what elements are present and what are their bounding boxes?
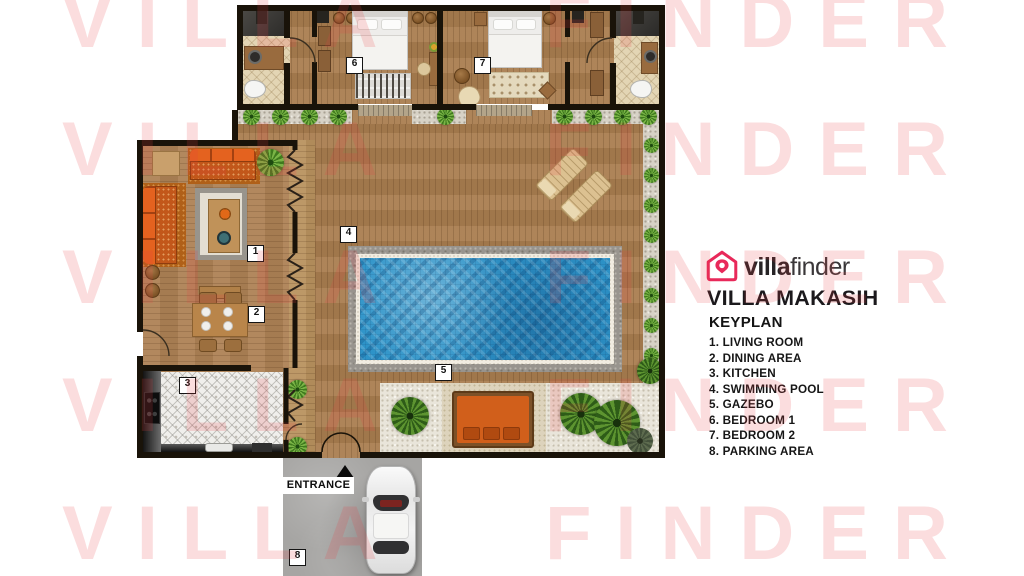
dining-chair xyxy=(199,339,217,352)
wall xyxy=(412,104,476,110)
wall xyxy=(137,365,251,371)
brand-name-villa: villa xyxy=(744,253,790,281)
bedroom1-chair xyxy=(417,62,431,76)
bedroom2-nightstand xyxy=(474,12,487,26)
bedroom1-rug xyxy=(355,73,411,99)
car-roof xyxy=(373,513,409,539)
keyplan-item: 6. BEDROOM 1 xyxy=(709,413,969,429)
plant-icon xyxy=(437,108,454,125)
pendant-lamp-icon xyxy=(256,11,267,24)
keyplan-item: 7. BEDROOM 2 xyxy=(709,428,969,444)
wall xyxy=(232,110,238,144)
bed-pillow xyxy=(493,19,513,30)
car-rear-window xyxy=(373,541,409,554)
bedside-stool xyxy=(333,12,345,24)
deck-walkway xyxy=(289,140,315,452)
wall xyxy=(237,104,358,110)
car-dashboard xyxy=(380,500,402,507)
wall xyxy=(610,11,616,38)
plate-icon xyxy=(201,321,211,331)
plant-icon xyxy=(330,108,347,125)
plant-icon xyxy=(556,108,573,125)
bedroom1-wardrobe xyxy=(318,26,331,46)
bedroom2-rug xyxy=(489,72,549,98)
living-sofa-left-seat xyxy=(155,186,177,264)
plant-icon xyxy=(257,149,284,176)
wall xyxy=(237,5,665,11)
plant-icon xyxy=(614,108,631,125)
plant-icon xyxy=(644,198,659,213)
bed-pillow xyxy=(516,19,536,30)
swimming-pool-water xyxy=(360,258,610,360)
entrance-text: ENTRANCE xyxy=(287,479,351,491)
bathroom1-sink xyxy=(248,50,262,64)
room-label-pool-deck: 4 xyxy=(340,226,357,243)
wall xyxy=(565,11,570,37)
daybed-cushion xyxy=(483,427,500,440)
house-pin-icon xyxy=(706,250,738,282)
bed-pillow xyxy=(381,19,402,30)
car-mirror xyxy=(362,497,369,502)
wall-lamp-icon xyxy=(572,9,584,23)
bedroom2-bed xyxy=(488,10,542,68)
shrub-icon xyxy=(627,428,653,454)
bedroom1-doormat xyxy=(358,105,412,116)
wall xyxy=(312,62,317,104)
bedroom2-wardrobe xyxy=(590,12,604,38)
car xyxy=(366,466,416,574)
car-mirror xyxy=(413,497,420,502)
keyplan-list: 1. LIVING ROOM 2. DINING AREA 3. KITCHEN… xyxy=(709,335,969,459)
wall xyxy=(284,11,290,38)
plant-icon xyxy=(644,138,659,153)
floor-pouf xyxy=(145,283,160,298)
wall xyxy=(610,63,616,104)
bed-headboard xyxy=(489,11,541,17)
plant-icon xyxy=(585,108,602,125)
bed-pillow xyxy=(357,19,378,30)
wall-lamp-icon xyxy=(317,9,329,23)
palm-plant-icon xyxy=(391,397,429,435)
room-label-dining: 2 xyxy=(248,306,265,323)
keyplan-item: 2. DINING AREA xyxy=(709,351,969,367)
wall xyxy=(312,11,317,37)
plant-icon xyxy=(644,228,659,243)
bathroom2-toilet xyxy=(630,80,652,98)
bed-headboard xyxy=(353,11,407,17)
plant-icon xyxy=(243,108,260,125)
watermark-text: FINDER xyxy=(545,496,972,572)
wall xyxy=(437,5,443,104)
keyplan-item: 4. SWIMMING POOL xyxy=(709,382,969,398)
daybed-cushion xyxy=(503,427,520,440)
gazebo-daybed xyxy=(452,391,534,448)
brand-name-finder: finder xyxy=(790,253,850,281)
plate-icon xyxy=(223,307,233,317)
plant-icon xyxy=(288,380,307,399)
bedside-stool xyxy=(425,12,437,24)
wall xyxy=(137,140,143,332)
keyplan-item: 1. LIVING ROOM xyxy=(709,335,969,351)
room-label-gazebo: 5 xyxy=(435,364,452,381)
plant-icon xyxy=(644,318,659,333)
wall xyxy=(284,63,290,104)
entrance-label: ENTRANCE xyxy=(283,477,354,494)
plant-icon xyxy=(640,108,657,125)
bathroom2-sink xyxy=(644,50,657,63)
room-label-kitchen: 3 xyxy=(179,377,196,394)
kitchen-stove xyxy=(144,392,160,424)
bedside-stool xyxy=(412,12,424,24)
daybed-cushion xyxy=(463,427,480,440)
plant-icon xyxy=(644,168,659,183)
keyplan-item: 3. KITCHEN xyxy=(709,366,969,382)
wall xyxy=(360,452,665,458)
room-label-bedroom1: 6 xyxy=(346,57,363,74)
room-label-parking: 8 xyxy=(289,549,306,566)
info-panel: villafinder VILLA MAKASIH KEYPLAN 1. LIV… xyxy=(706,248,1016,468)
dining-table xyxy=(192,303,248,337)
pendant-lamp-icon xyxy=(633,11,644,24)
living-sofa-top-seat xyxy=(190,161,256,180)
plate-icon xyxy=(201,307,211,317)
villa-title: VILLA MAKASIH xyxy=(707,286,879,311)
kitchen-appliance xyxy=(252,443,272,452)
wall xyxy=(565,62,570,104)
wall xyxy=(137,140,295,146)
keyplan-item: 8. PARKING AREA xyxy=(709,444,969,460)
brand-logo: villafinder xyxy=(706,250,906,284)
room-label-bedroom2: 7 xyxy=(474,57,491,74)
bedside-stool xyxy=(543,12,556,25)
wall xyxy=(237,5,243,110)
kitchen-sink xyxy=(205,443,233,452)
wall xyxy=(137,356,143,458)
keyplan-heading: KEYPLAN xyxy=(709,314,783,331)
table-bowl-icon xyxy=(217,231,231,245)
bedroom2-doormat xyxy=(476,105,532,116)
bedroom2-wardrobe xyxy=(590,70,604,96)
table-flowers-icon xyxy=(219,208,231,220)
plant-icon xyxy=(301,108,318,125)
wall xyxy=(659,5,665,458)
room-label-living: 1 xyxy=(247,245,264,262)
living-side-table xyxy=(152,151,180,176)
keyplan-item: 5. GAZEBO xyxy=(709,397,969,413)
right-gravel-strip xyxy=(643,124,659,386)
plant-icon xyxy=(272,108,289,125)
plate-icon xyxy=(223,321,233,331)
bedroom1-wardrobe xyxy=(318,50,331,72)
bedroom2-pouf xyxy=(454,68,470,84)
floorplan-canvas: ENTRANCE 1 2 3 4 5 6 7 8 xyxy=(0,0,1024,576)
plant-icon xyxy=(644,258,659,273)
floor-pouf xyxy=(145,265,160,280)
wall xyxy=(137,452,322,458)
plant-icon xyxy=(644,288,659,303)
wall xyxy=(548,104,665,110)
dining-chair xyxy=(224,339,242,352)
bed-blanket xyxy=(489,34,541,67)
brand-name: villafinder xyxy=(744,253,850,281)
